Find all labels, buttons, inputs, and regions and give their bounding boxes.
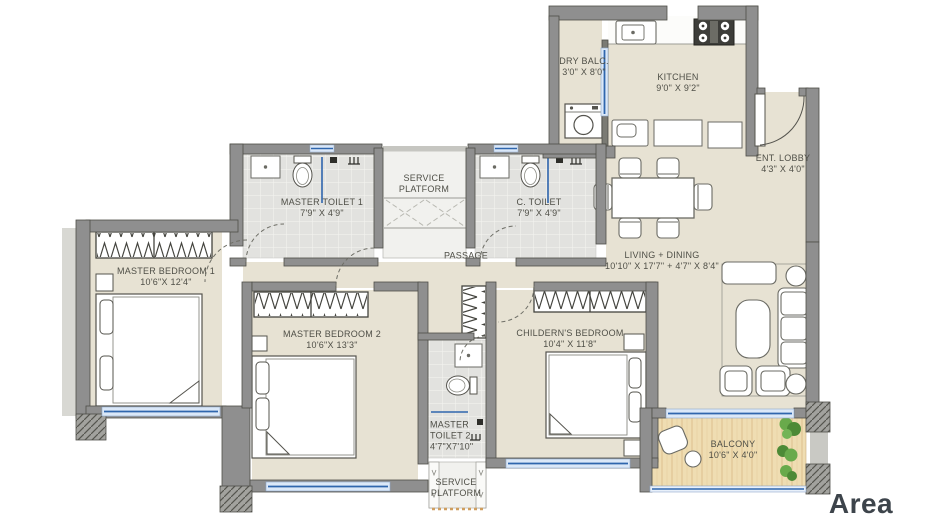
wc-icon <box>470 377 477 394</box>
room-label-ent-lobby: ENT. LOBBY 4'3" X 4'0" <box>756 153 811 175</box>
washbasin-icon <box>330 157 337 163</box>
wardrobe-icon <box>534 288 646 312</box>
room-label-living-dining: LIVING + DINING 10'10" X 17'7" + 4'7" X … <box>605 250 719 272</box>
bed-icon <box>546 334 646 456</box>
room-label-passage: PASSAGE <box>444 251 488 262</box>
balcony-railing <box>650 486 806 492</box>
room-label-service-platform-bottom: SERVICE PLATFORM <box>431 477 481 499</box>
window <box>266 482 390 491</box>
area-caption: Area <box>829 488 893 520</box>
room-label-kitchen: KITCHEN 9'0" X 9'2" <box>656 72 700 94</box>
washing-machine-icon <box>565 104 602 138</box>
wardrobe-icon <box>254 292 368 317</box>
wardrobe-icon <box>96 232 212 258</box>
wc-icon <box>522 156 539 163</box>
bed-icon <box>96 274 202 406</box>
washbasin-icon <box>477 419 483 425</box>
balcony-table-icon <box>685 451 701 467</box>
stove-icon <box>694 19 734 45</box>
wardrobe-icon <box>462 286 486 338</box>
room-label-service-platform-top: SERVICE PLATFORM <box>399 173 449 195</box>
towel-rail-icon <box>348 157 360 164</box>
room-label-master-toilet-2: MASTER TOILET 2 4'7"X7'10" <box>430 420 473 453</box>
kitchen-sink-icon <box>616 21 656 44</box>
wc-icon <box>294 156 311 163</box>
window <box>494 145 518 152</box>
room-label-childrens-bedroom: CHILDERN'S BEDROOM 10'4" X 11'8" <box>516 328 623 350</box>
window <box>506 459 630 468</box>
room-label-dry-balcony: DRY BALC. 3'0" X 8'0" <box>559 56 608 78</box>
window <box>310 145 334 152</box>
room-label-master-bedroom-2: MASTER BEDROOM 2 10'6"X 13'3" <box>283 329 381 351</box>
window <box>102 407 220 416</box>
room-label-balcony: BALCONY 10'6" X 4'0" <box>709 439 758 461</box>
room-label-c-toilet: C. TOILET 7'9" X 4'9" <box>517 197 562 219</box>
window <box>666 409 794 418</box>
room-label-master-toilet-1: MASTER TOILET 1 7'9" X 4'9" <box>281 197 363 219</box>
kitchen-cabinet-icon <box>612 120 742 148</box>
floor-plan-canvas: DRY BALC. 3'0" X 8'0" KITCHEN 9'0" X 9'2… <box>0 0 945 525</box>
room-label-master-bedroom-1: MASTER BEDROOM 1 10'6"X 12'4" <box>117 266 215 288</box>
